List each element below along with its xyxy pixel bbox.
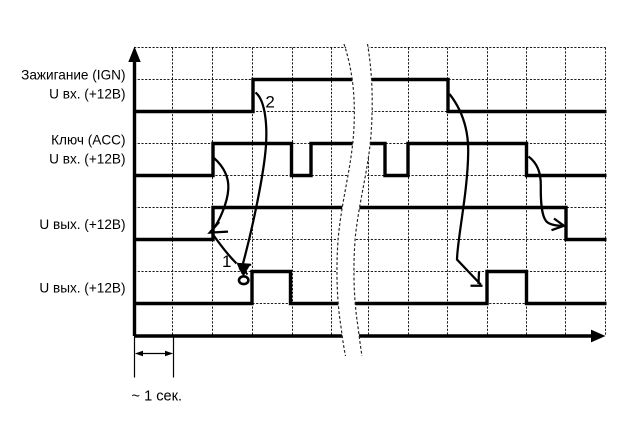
svg-text:U вх. (+12В): U вх. (+12В) bbox=[49, 86, 125, 101]
svg-text:Ключ (ACC): Ключ (ACC) bbox=[51, 133, 125, 148]
svg-text:1: 1 bbox=[222, 252, 231, 271]
svg-text:~ 1 сек.: ~ 1 сек. bbox=[132, 389, 183, 405]
svg-text:2: 2 bbox=[265, 92, 274, 111]
svg-text:U вых. (+12В): U вых. (+12В) bbox=[39, 217, 125, 232]
svg-text:Зажигание (IGN): Зажигание (IGN) bbox=[21, 68, 125, 83]
svg-text:U вх. (+12В): U вх. (+12В) bbox=[49, 151, 125, 166]
svg-text:U вых. (+12В): U вых. (+12В) bbox=[39, 281, 125, 296]
